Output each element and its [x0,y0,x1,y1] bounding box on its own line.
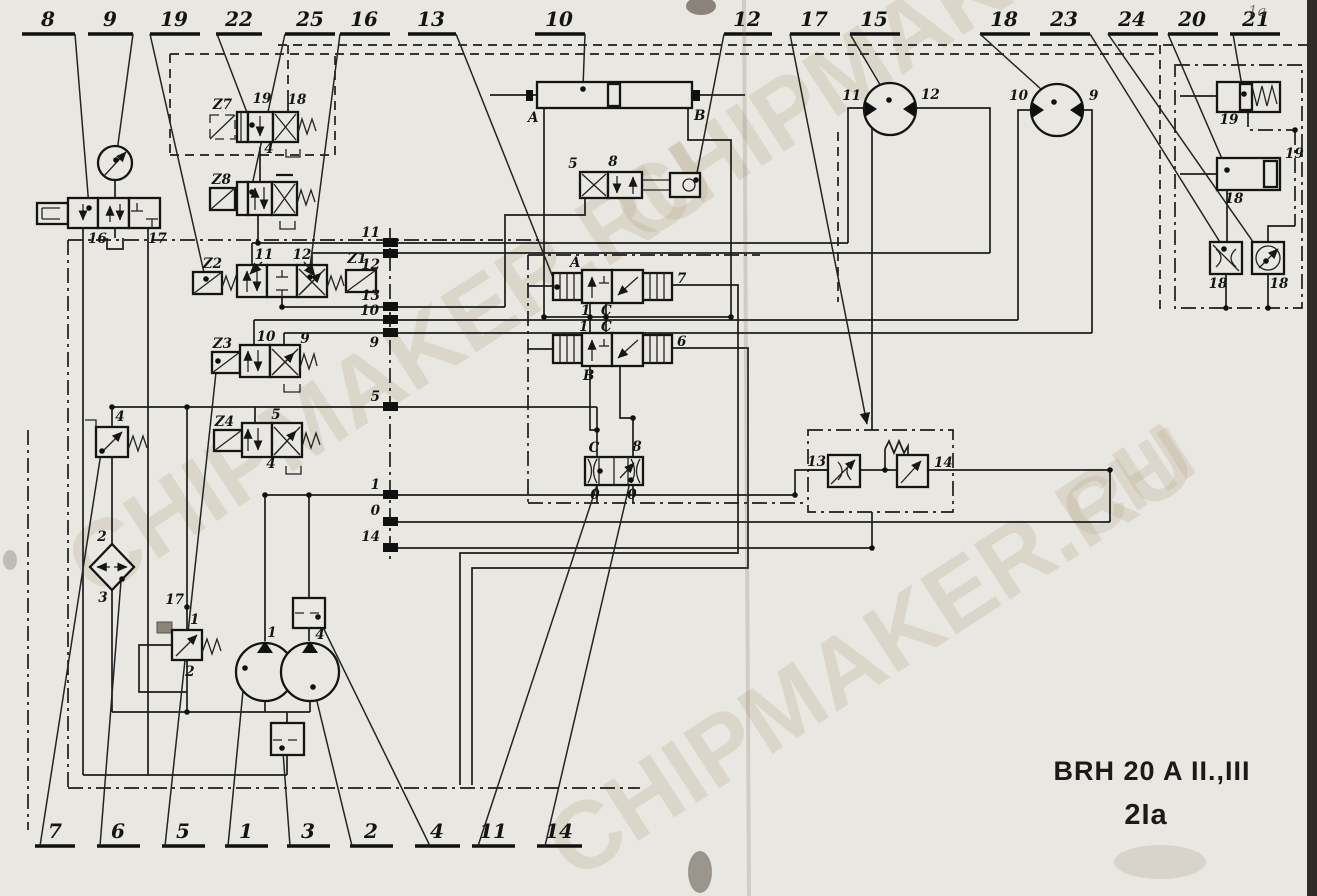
accessory-19-side-label: 19 [1285,146,1304,162]
valve-z4-pos-4: 4 [266,456,275,472]
valve-z8-label: Z8 [211,172,232,188]
port-node [383,315,398,324]
throttle-18-label: 18 [1209,276,1228,292]
port-marker-label: 5 [371,389,380,405]
roller-valve-8-label: 8 [608,154,618,170]
port-marker-label: 11 [361,225,380,241]
valve-z7-pin-19: 19 [253,91,272,107]
accessory-18-label: 18 [1225,191,1244,207]
port-node [383,543,398,552]
pilot-valve-a-7-label: 7 [677,271,687,287]
shuttle-port-0-left-label: 0 [590,487,600,503]
callout-number: 25 [295,7,324,31]
relief-valve-4-label: 4 [115,409,124,425]
pressure-gauge [98,146,132,180]
callout-number: 10 [545,7,573,31]
cylinder-port-b-label: B [693,108,705,124]
pilot-valve-b-portc-label: C [601,319,612,335]
valve-z7-pin-18: 18 [288,92,307,108]
callout-number: 17 [800,7,828,31]
callout-number: 2 [363,819,378,843]
drawing-model-title: BRH 20 A II.,III [1053,756,1250,786]
port-node [383,302,398,311]
callout-number: 3 [301,819,315,843]
callout-number: 22 [224,7,253,31]
filter-label-3: 3 [98,590,107,606]
valve-z4-pos-5: 5 [271,407,280,423]
manual-valve-port-left-label: 16 [88,231,107,247]
port-node [383,328,398,337]
callout-number: 1 [239,819,253,843]
port-marker-label: 14 [361,529,380,545]
pump-right-label: 4 [315,627,324,643]
shuttle-port-c-label: C [589,440,600,456]
gauge-18-label: 18 [1270,276,1289,292]
pump-relief-1-label: 1 [190,612,199,628]
pump-relief-17-label: 17 [165,592,184,608]
port-marker-label: 0 [371,503,381,519]
port-marker-label: 9 [370,335,380,351]
shuttle-port-8-label: 8 [632,439,642,455]
motor-left-port-12: 12 [921,87,940,103]
valve-z7-label: Z7 [212,97,233,113]
pump-relief-2-label: 2 [184,664,194,680]
callout-number: 9 [103,7,117,31]
port-marker-label: 10 [360,303,379,319]
gauge-18 [1252,242,1284,274]
pilot-valve-a-label: A [568,255,580,271]
valve-z2-label: Z2 [202,256,222,272]
callout-number: 16 [350,7,378,31]
callout-number: 5 [176,819,190,843]
handwritten-note: 1a [1248,2,1267,20]
callout-number: 19 [160,7,188,31]
accessory-19-label: 19 [1220,112,1239,128]
callout-number: 20 [1177,7,1206,31]
callout-number: 7 [48,819,62,843]
motor-right-port-10: 10 [1009,88,1028,104]
callout-number: 13 [417,7,445,31]
port-node [383,238,398,247]
port-node [383,249,398,258]
flow-control-14-label: 14 [934,455,953,471]
port-marker-label: 12 [361,257,380,273]
pump-left-label: 1 [267,625,276,641]
port-node [383,517,398,526]
callout-number: 15 [860,7,888,31]
callout-number: 6 [111,819,125,843]
port-marker-label: 1 [371,477,380,493]
roller-valve-5-label: 5 [568,156,577,172]
port-marker-label: 13 [361,288,380,304]
callout-number: 23 [1049,7,1078,31]
valve-z4-label: Z4 [214,414,234,430]
port-node [383,402,398,411]
drawing-sheet-number: 2Ia [1124,799,1167,831]
pilot-valve-b-port1-label: 1 [579,319,588,335]
callout-number: 24 [1117,7,1146,31]
schematic-canvas: CHIPMAKER.RU CHIPMAKER.RU CHIPMAKER.RU C… [0,0,1317,896]
valve-z3-pos-10: 10 [257,329,276,345]
callout-number: 4 [430,819,444,843]
cylinder-port-a-label: A [526,110,538,126]
callout-number: 8 [40,7,55,31]
valve-z7-pin-4: 4 [264,141,273,157]
valve-z2-pos-12: 12 [293,247,312,263]
suction-strainer [271,723,304,755]
callout-number: 18 [990,7,1018,31]
manual-valve-port-right-label: 17 [148,231,167,247]
filter-label-2: 2 [96,529,106,545]
flow-control-13-label: 13 [807,454,826,470]
valve-z2-pos-11: 11 [255,247,274,263]
valve-z3-label: Z3 [212,336,232,352]
shuttle-port-0-right-label: 0 [627,487,637,503]
pilot-valve-b-label: B [582,368,594,384]
motor-right-port-9: 9 [1089,88,1099,104]
callout-number: 12 [733,7,761,31]
port-node [383,490,398,499]
scanned-schematic-page: CHIPMAKER.RU CHIPMAKER.RU CHIPMAKER.RU C… [0,0,1317,896]
motor-left-port-11: 11 [842,88,861,104]
valve-z3-pos-9: 9 [300,331,310,347]
pilot-valve-b-6-label: 6 [677,334,687,350]
